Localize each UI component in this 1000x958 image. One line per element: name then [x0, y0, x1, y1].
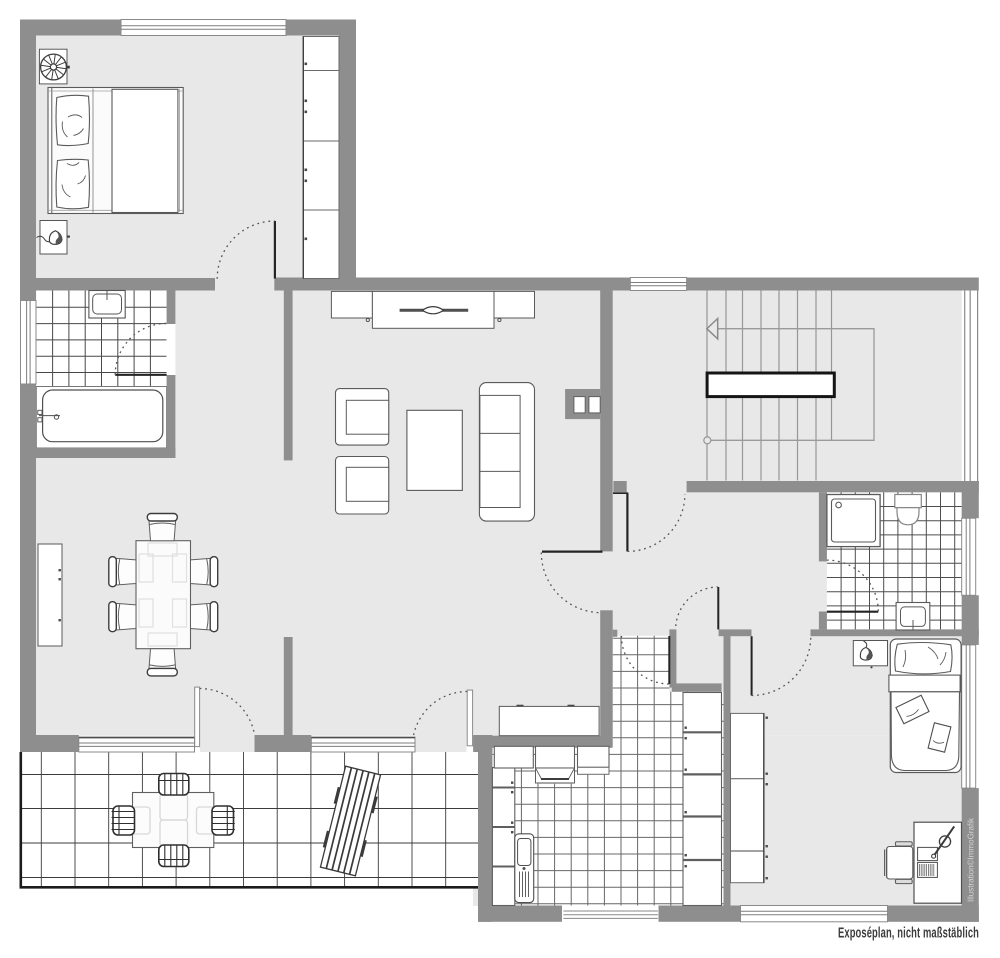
svg-text:Exposéplan, nicht maßstäblich: Exposéplan, nicht maßstäblich — [838, 925, 979, 942]
svg-text:Illustration©ImmoGrafik: Illustration©ImmoGrafik — [967, 817, 976, 902]
